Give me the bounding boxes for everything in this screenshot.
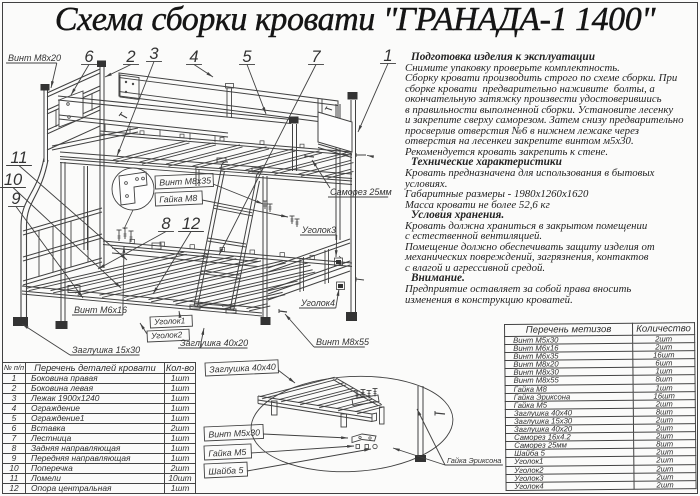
svg-text:Гайка Эриксона: Гайка Эриксона <box>447 456 501 465</box>
svg-text:9: 9 <box>11 190 20 208</box>
svg-text:12: 12 <box>182 215 200 233</box>
svg-text:Винт М8х20: Винт М8х20 <box>8 53 61 63</box>
svg-text:8: 8 <box>161 215 171 233</box>
svg-text:10: 10 <box>4 171 23 189</box>
svg-text:Винт М6х16: Винт М6х16 <box>74 305 127 315</box>
svg-text:Винт М8х35: Винт М8х35 <box>159 175 211 187</box>
svg-text:Заглушка 40х40: Заглушка 40х40 <box>209 362 276 375</box>
svg-text:2: 2 <box>125 48 135 66</box>
svg-text:5: 5 <box>242 48 252 66</box>
svg-text:Уголок3: Уголок3 <box>301 225 336 235</box>
svg-text:Уголок4: Уголок4 <box>300 298 335 308</box>
svg-text:Шайба 5: Шайба 5 <box>208 465 244 477</box>
svg-text:Гайка М5: Гайка М5 <box>208 447 246 459</box>
svg-text:Уголок2: Уголок2 <box>150 330 183 340</box>
svg-text:7: 7 <box>311 48 321 66</box>
svg-text:11: 11 <box>10 149 27 167</box>
svg-text:Саморез 25мм: Саморез 25мм <box>330 187 392 197</box>
svg-text:Уголок1: Уголок1 <box>153 316 185 326</box>
svg-text:Гайка М8: Гайка М8 <box>159 193 197 205</box>
svg-text:Винт М8х55: Винт М8х55 <box>316 337 370 347</box>
svg-text:4: 4 <box>189 48 198 66</box>
svg-text:Винт М5х30: Винт М5х30 <box>208 427 260 439</box>
svg-text:Заглушка 15х30: Заглушка 15х30 <box>72 345 140 355</box>
svg-text:6: 6 <box>84 48 94 66</box>
svg-text:1: 1 <box>383 47 392 65</box>
svg-text:Заглушка 40х20: Заглушка 40х20 <box>180 338 248 348</box>
svg-text:3: 3 <box>149 45 159 63</box>
